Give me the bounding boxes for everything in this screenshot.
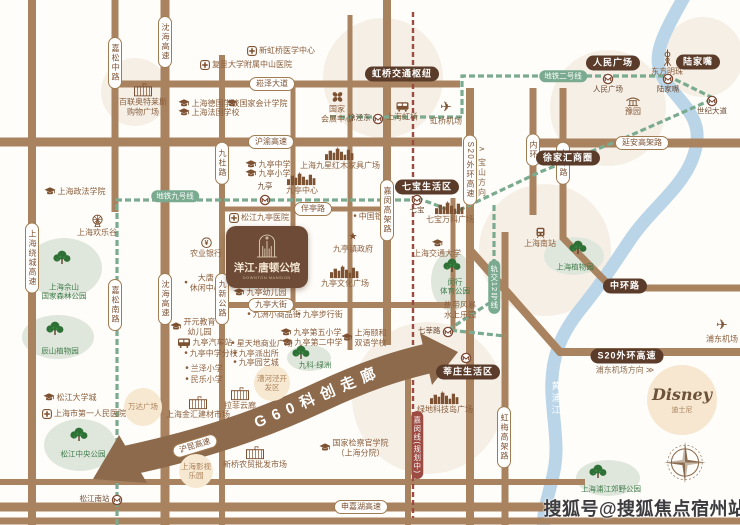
poi-label-line: 水上乐园: [444, 310, 476, 320]
skyline-icon: [430, 391, 460, 404]
poi-label: 豫园: [625, 107, 641, 117]
park-label-line: 体育公园: [440, 287, 470, 296]
poi: 热带风暴水上乐园: [444, 300, 476, 319]
poi: 新桥农贸批发市场: [223, 446, 287, 470]
trees-icon: [69, 427, 89, 447]
zone-badge: 虹桥交通枢纽: [365, 67, 439, 82]
poi-label-line: 热带风暴: [444, 300, 476, 310]
poi: 开元教育幼儿园: [171, 317, 216, 336]
station-label: 徐泾东: [348, 112, 371, 123]
road-badge: S20外环高速: [463, 135, 477, 206]
poi-label: 九亭第五小学: [294, 328, 342, 338]
park-label: 上海植物园: [556, 262, 594, 271]
station-label: 人民广场: [593, 84, 623, 95]
park-label-line: 九科·绿洲: [299, 360, 332, 369]
poi-label-line: （上海分院）: [333, 448, 389, 458]
poi: 九亭汽车站: [178, 338, 233, 348]
bus-icon: [178, 338, 191, 348]
zone-badge: 徐家汇商圈: [536, 151, 600, 166]
metro-station: 九亭: [260, 193, 271, 204]
plaza-label: 上海影视乐园: [181, 462, 211, 481]
poi: 上海金汇建材市场: [166, 396, 230, 420]
poi-label-line: 开元教育: [184, 317, 216, 327]
poi-label: 上海法国学校: [192, 108, 240, 118]
road-badge: 嘉松南路: [108, 279, 122, 331]
poi: 国家检察官学院（上海分院）: [320, 438, 389, 457]
poi-label: 上海南站: [524, 239, 556, 249]
poi-label: 民乐小学: [191, 375, 223, 385]
park-label-line: 闵行: [440, 278, 470, 287]
property-emblem-icon: [256, 234, 278, 258]
disney-resort: Disney 迪士尼: [647, 365, 717, 435]
direction-label: ∧ 宝山方向: [477, 146, 488, 198]
poi-label: 九亭镇政府: [333, 245, 373, 255]
poi-label: 九亭园艺城: [239, 358, 279, 368]
road-badge: 嘉闵高架路: [380, 179, 394, 241]
station-label: 七宝: [410, 205, 425, 216]
poi-label: 绿地科技岛广场: [417, 405, 473, 415]
metro-station: 松江南站: [112, 493, 123, 504]
poi-label: 开元教育幼儿园: [184, 317, 216, 336]
plaza-label: 漕河泾开发区: [256, 374, 288, 393]
poi: 豫园: [625, 97, 641, 117]
metro-station: 人民广场: [603, 72, 614, 83]
road-badge: 沪渝高速: [248, 135, 294, 149]
metro-station-icon: [112, 493, 123, 510]
hospital-icon: [247, 46, 257, 56]
metro-line-badge: 地铁九号线: [151, 190, 199, 202]
poi: 新虹桥医学中心: [247, 46, 315, 56]
school-icon: [432, 239, 443, 248]
park-label-line: 松江中央公园: [61, 449, 106, 458]
poi-label: 上海政法学院: [58, 187, 106, 197]
road-badge: 沈海高速: [158, 273, 172, 325]
poi: ¥农业银行: [190, 237, 222, 259]
school-icon: [179, 109, 190, 118]
metro-station: 七宝: [412, 193, 423, 204]
plaza: 漕河泾开发区: [254, 365, 290, 401]
building-icon: [189, 396, 207, 409]
wheel-icon: [91, 214, 104, 227]
dot-icon: •: [233, 357, 237, 369]
plaza: 万达广场: [124, 388, 162, 426]
road-badge: 九亭大街: [248, 298, 294, 312]
poi-label: 九亭第二中学: [295, 338, 343, 348]
road-badge: 伴亭路: [294, 202, 332, 216]
dot-icon: •: [184, 348, 188, 360]
train-icon: [535, 227, 546, 238]
school-icon: [179, 100, 190, 109]
poi: •九亭园艺城: [233, 357, 279, 369]
poi: 上海交通大学: [413, 239, 461, 259]
poi: 九亭中心: [286, 172, 318, 196]
poi-label: 松江大学城: [57, 393, 97, 403]
dot-icon: •: [297, 309, 301, 321]
poi: ✈虹桥机场: [430, 98, 462, 125]
station-label: 松江南站: [80, 493, 110, 504]
road-badge: 虹梅高架路: [497, 406, 511, 468]
poi-label-line: 国家检察官学院: [333, 438, 389, 448]
dot-icon: •: [185, 374, 189, 386]
trees-icon: [45, 321, 65, 341]
property-name-en: DOWNTON MANSION: [243, 275, 291, 280]
trees-icon: [442, 258, 462, 278]
poi-label: 虹桥机场: [430, 116, 462, 126]
metro-line-badge: 轨交12号线: [488, 260, 500, 314]
building-icon: [134, 83, 152, 96]
svg-text:¥: ¥: [204, 240, 208, 247]
zone-badge: 人民广场: [586, 56, 640, 71]
station-label: 世纪大道: [697, 106, 727, 117]
park-label: 闵行体育公园: [440, 278, 470, 297]
property-card: 洋江·唐顿公馆 DOWNTON MANSION: [226, 226, 308, 288]
poi-label-line: 上海颐和: [355, 328, 387, 338]
poi: 九亭文化广场: [321, 265, 369, 289]
tower-icon: [663, 49, 672, 66]
poi-label: 国家检察官学院（上海分院）: [333, 438, 389, 457]
poi: 上海政法学院: [45, 187, 106, 197]
metro-station-icon: [461, 351, 472, 368]
watermark: 搜狐号@搜狐焦点宿州站: [543, 495, 740, 521]
poi: 松江九亭医院: [229, 213, 289, 223]
school-icon: [342, 334, 353, 343]
plane-icon: ✈: [440, 98, 452, 115]
park-label: 上海浦江郊野公园: [581, 484, 641, 493]
park-label-line: 上海佘山: [42, 283, 87, 292]
road-badge: 上海绕城高速: [25, 223, 39, 294]
poi-label: 上海市第一人民医院: [54, 409, 126, 419]
poi: 上海颐和双语学校: [342, 328, 387, 347]
poi-label: 热带风暴水上乐园: [444, 300, 476, 319]
bus-icon: [396, 102, 409, 112]
poi-label: 新桥农贸批发市场: [223, 460, 287, 470]
school-icon: [171, 323, 182, 332]
skyline-icon: [435, 201, 465, 214]
poi-label: 浦东机场: [706, 334, 738, 344]
star-icon: ★: [349, 232, 358, 244]
poi-label: 九亭步行街: [303, 310, 343, 320]
park-label-line: 上海植物园: [556, 262, 594, 271]
school-icon: [246, 161, 257, 170]
metro-station: 七莘路: [443, 325, 454, 336]
zone-badge: S20外环高速: [590, 349, 663, 364]
zone-badge: 七宝生活区: [395, 180, 459, 195]
road-badge: 九杜路: [215, 142, 229, 185]
river-label: 黄浦江: [550, 381, 563, 417]
park-label: 辰山植物园: [41, 346, 79, 355]
plaza-label: 万达广场: [128, 402, 158, 411]
poi-label: 九亭中心: [286, 186, 318, 196]
poi: 复旦大学附属中山医院: [200, 60, 292, 70]
poi: 上海南站: [524, 227, 556, 249]
park-label: 上海佘山国家森林公园: [42, 283, 87, 302]
skyline-icon: [325, 147, 355, 160]
zone-badge: 陆家嘴: [676, 55, 720, 70]
school-icon: [246, 170, 257, 179]
trees-icon: [588, 464, 608, 484]
poi-label: 九亭文化广场: [321, 279, 369, 289]
dot-icon: •: [353, 211, 357, 223]
building-icon: [231, 387, 249, 400]
location-map: 洋江·唐顿公馆 DOWNTON MANSION G60科创走廊 Disney 迪…: [0, 0, 740, 525]
park-label: 松江中央公园: [61, 449, 106, 458]
direction-label: 浦东机场方向 ≫: [596, 365, 655, 376]
poi: 上海九星红木家具广场: [300, 147, 380, 171]
poi: 国家会计学院: [227, 99, 288, 109]
school-icon: [234, 289, 245, 298]
road-badge: 嘉松中路: [108, 37, 122, 89]
road-badge: 延安高架路: [615, 136, 669, 150]
poi: ★九亭镇政府: [333, 232, 373, 255]
road-badge: 崧泽大道: [249, 77, 295, 91]
pavilion-icon: [626, 97, 640, 106]
park-label-line: 上海浦江郊野公园: [581, 484, 641, 493]
poi-label: 上海交通大学: [413, 249, 461, 259]
park-label: 九科·绿洲: [299, 360, 332, 369]
compass-icon: [662, 440, 708, 491]
poi-label: 百联奥特莱斯购物广场: [119, 97, 167, 116]
poi-label: 上海九星红木家具广场: [300, 161, 380, 171]
clover-icon: [331, 90, 344, 103]
poi-label: 松江九亭医院: [241, 213, 289, 223]
poi: 绿地科技岛广场: [417, 391, 473, 415]
skyline-icon: [330, 265, 360, 278]
poi: •九亭中学分校: [184, 348, 238, 360]
hospital-icon: [200, 60, 210, 70]
poi-label-line: 购物广场: [119, 107, 167, 117]
poi: ✈浦东机场: [706, 316, 738, 343]
poi-label: 农业银行: [190, 249, 222, 259]
poi: 上海法国学校: [179, 108, 240, 118]
disney-logo: Disney: [652, 385, 712, 404]
hospital-icon: [42, 409, 52, 419]
poi: 百联奥特莱斯购物广场: [119, 83, 167, 116]
bank-icon: ¥: [201, 237, 212, 248]
school-icon: [45, 188, 56, 197]
station-label: 七莘路: [418, 325, 441, 336]
poi-label: 上海欢乐谷: [77, 228, 117, 238]
school-icon: [44, 394, 55, 403]
poi: 拉菲云廊: [224, 387, 256, 411]
plane-icon: ✈: [716, 316, 728, 333]
road-badge: 沈海高速: [158, 16, 172, 68]
poi: 松江大学城: [44, 393, 97, 403]
poi-label: 国家会计学院: [240, 99, 288, 109]
poi: 上海欢乐谷: [77, 214, 117, 238]
zone-badge: 中环路: [603, 279, 647, 294]
park-label-line: 辰山植物园: [41, 346, 79, 355]
poi: 上海虹桥: [386, 102, 418, 123]
poi-label: 九亭汽车站: [193, 338, 233, 348]
poi-label: 复旦大学附属中山医院: [212, 60, 292, 70]
poi-label: 九亭幼儿园: [247, 288, 287, 298]
plaza: 上海影视乐园: [179, 454, 213, 488]
poi-label-line: 双语学校: [355, 338, 387, 348]
poi: 九亭第五小学: [281, 328, 342, 338]
property-name: 洋江·唐顿公馆: [234, 260, 301, 275]
building-icon: [246, 446, 264, 459]
metro-station-icon: [443, 325, 454, 342]
school-icon: [320, 444, 331, 453]
metro-station-icon: [260, 193, 271, 210]
poi-label: 上海虹桥: [386, 113, 418, 123]
poi: 九亭幼儿园: [234, 288, 287, 298]
poi-label: 上海颐和双语学校: [355, 328, 387, 347]
metro-line-badge: 地铁二号线: [539, 70, 587, 82]
hospital-icon: [229, 213, 239, 223]
poi-label: 九亭中学分校: [190, 349, 238, 359]
poi: 九亭小学: [246, 169, 291, 179]
poi: 上海市第一人民医院: [42, 409, 126, 419]
poi-label: 兰泽小学: [191, 364, 223, 374]
metro-station: [461, 351, 472, 362]
poi-label: 上海金汇建材市场: [166, 410, 230, 420]
metro-station: 徐泾东: [373, 112, 384, 123]
poi-label: 七宝万科广场: [426, 215, 474, 225]
metro-station: 陆家嘴: [663, 72, 674, 83]
park-label-line: 国家森林公园: [42, 292, 87, 301]
school-icon: [281, 329, 292, 338]
disney-name-cn: 迪士尼: [672, 405, 693, 415]
metro-station: 世纪大道: [707, 94, 718, 105]
planned-line-badge: 嘉闵线(规划中): [411, 411, 423, 479]
trees-icon: [568, 240, 588, 260]
metro-station-icon: [373, 112, 384, 129]
poi-label-line: 百联奥特莱斯: [119, 97, 167, 107]
school-icon: [227, 100, 238, 109]
trees-icon: [52, 250, 72, 270]
road-badge: 申嘉湖高速: [334, 500, 388, 514]
skyline-icon: [287, 172, 317, 185]
poi: •九亭步行街: [297, 309, 343, 321]
poi-label: 拉菲云廊: [224, 401, 256, 411]
poi-label-line: 幼儿园: [184, 327, 216, 337]
poi-label: 新虹桥医学中心: [259, 46, 315, 56]
station-label: 陆家嘴: [657, 84, 680, 95]
station-label: 九亭: [258, 181, 273, 192]
dot-icon: •: [184, 277, 188, 289]
poi: •民乐小学: [185, 374, 223, 386]
